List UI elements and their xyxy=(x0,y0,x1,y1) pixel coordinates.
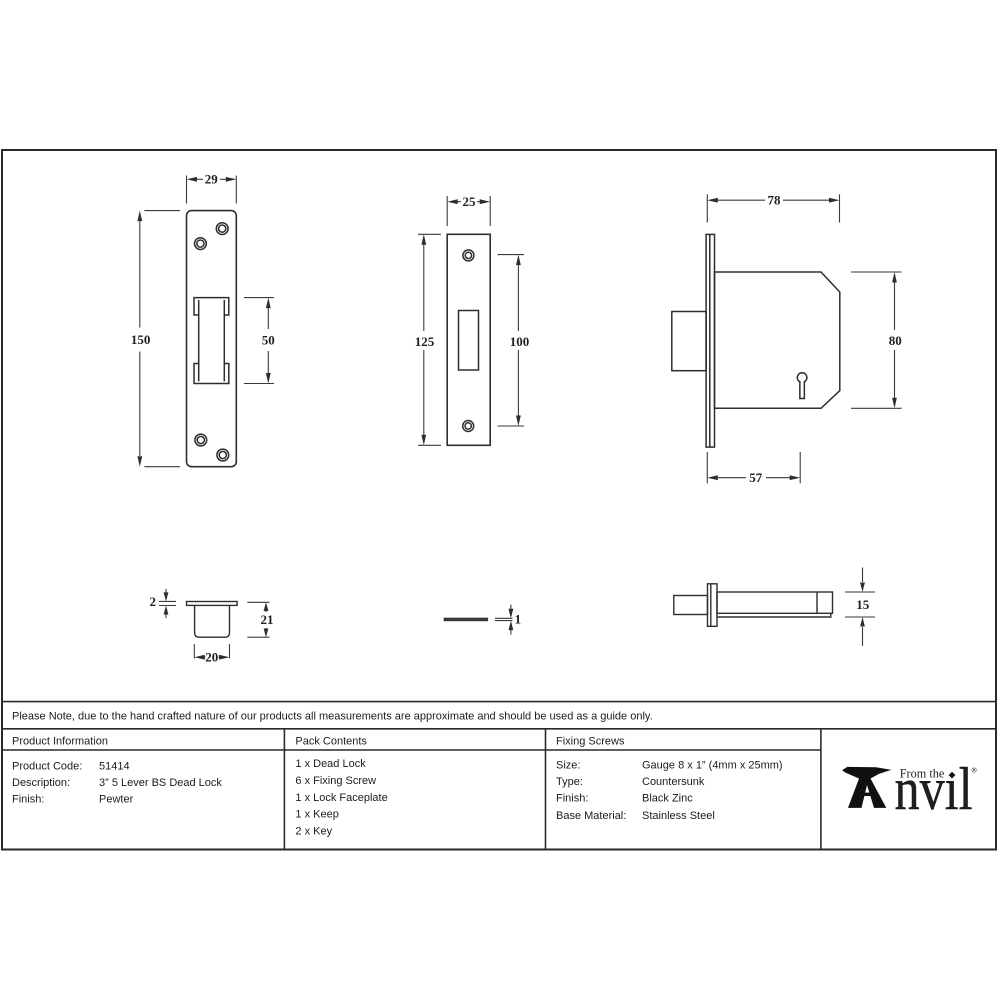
svg-text:20: 20 xyxy=(205,650,218,665)
svg-text:Gauge 8 x 1” (4mm x 25mm): Gauge 8 x 1” (4mm x 25mm) xyxy=(642,760,783,772)
svg-text:15: 15 xyxy=(856,597,870,612)
svg-text:Finish:: Finish: xyxy=(12,793,44,805)
svg-text:1 x Dead Lock: 1 x Dead Lock xyxy=(295,758,366,770)
svg-text:Please Note, due to the hand c: Please Note, due to the hand crafted nat… xyxy=(12,710,653,722)
svg-text:Stainless Steel: Stainless Steel xyxy=(642,810,715,822)
svg-text:Base Material:: Base Material: xyxy=(556,810,626,822)
svg-text:25: 25 xyxy=(463,194,477,209)
svg-text:Type:: Type: xyxy=(556,776,583,788)
svg-text:Description:: Description: xyxy=(12,777,70,789)
svg-text:50: 50 xyxy=(262,333,275,348)
svg-text:Fixing Screws: Fixing Screws xyxy=(556,735,625,747)
svg-text:2: 2 xyxy=(150,594,157,609)
svg-text:nvıl: nvıl xyxy=(895,756,973,822)
svg-text:80: 80 xyxy=(889,333,902,348)
svg-text:1 x Keep: 1 x Keep xyxy=(295,809,338,821)
svg-text:29: 29 xyxy=(205,172,219,187)
svg-text:57: 57 xyxy=(749,470,763,485)
svg-text:51414: 51414 xyxy=(99,760,130,772)
svg-text:®: ® xyxy=(971,766,977,775)
svg-text:6 x Fixing Screw: 6 x Fixing Screw xyxy=(295,775,376,787)
svg-text:Size:: Size: xyxy=(556,760,580,772)
svg-text:78: 78 xyxy=(768,193,782,208)
svg-text:2 x Key: 2 x Key xyxy=(295,826,332,838)
svg-text:Pewter: Pewter xyxy=(99,793,134,805)
svg-text:1 x Lock Faceplate: 1 x Lock Faceplate xyxy=(295,792,387,804)
svg-text:21: 21 xyxy=(261,612,274,627)
svg-text:Pack Contents: Pack Contents xyxy=(295,735,367,747)
svg-text:100: 100 xyxy=(510,334,530,349)
svg-text:Countersunk: Countersunk xyxy=(642,776,705,788)
svg-text:150: 150 xyxy=(131,332,151,347)
svg-text:125: 125 xyxy=(415,334,435,349)
svg-text:Product Information: Product Information xyxy=(12,735,108,747)
svg-text:Finish:: Finish: xyxy=(556,793,588,805)
svg-text:Black Zinc: Black Zinc xyxy=(642,793,693,805)
svg-text:3” 5 Lever BS Dead Lock: 3” 5 Lever BS Dead Lock xyxy=(99,777,222,789)
svg-text:Product Code:: Product Code: xyxy=(12,760,82,772)
svg-text:1: 1 xyxy=(515,611,522,626)
